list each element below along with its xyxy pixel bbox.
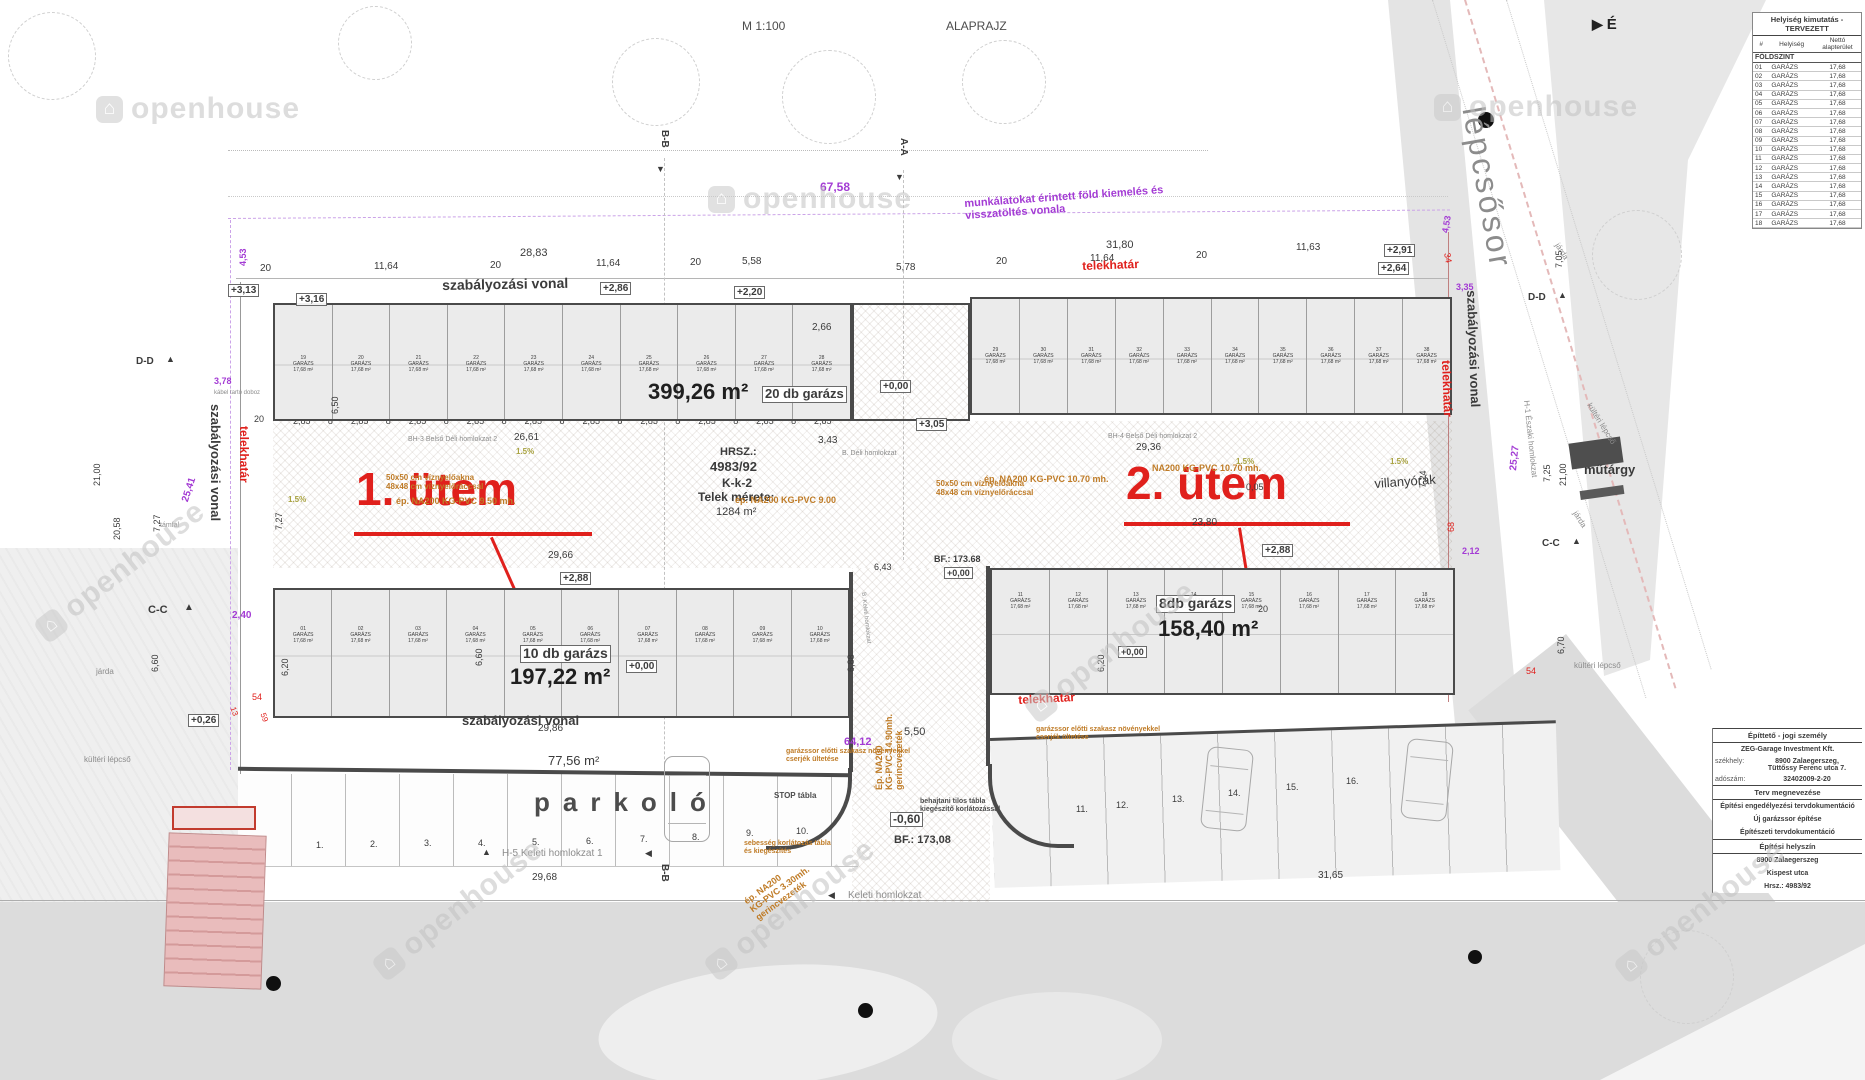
garage-cell-label: 08 GARÁZS 17,68 m²	[677, 626, 733, 644]
dim: 3,78	[214, 376, 232, 386]
section-mark: B-B	[659, 864, 670, 882]
manhole-dot	[266, 976, 281, 991]
dim: 29,68	[532, 872, 557, 883]
schedule-cell-room: GARÁZS	[1769, 200, 1814, 209]
schedule-cell-room: GARÁZS	[1769, 191, 1814, 200]
garage-count-top: 20 db garázs	[762, 386, 847, 403]
garage-row-top-right: 29 GARÁZS 17,68 m²30 GARÁZS 17,68 m²31 G…	[970, 297, 1452, 415]
garage-cell: 07 GARÁZS 17,68 m²	[619, 590, 676, 716]
garage-cell: 37 GARÁZS 17,68 m²	[1355, 299, 1403, 413]
drawing-type-label: ALAPRAJZ	[946, 20, 1007, 33]
garage-cell-label: 09 GARÁZS 17,68 m²	[734, 626, 790, 644]
schedule-cell-area: 17,68	[1814, 81, 1861, 90]
watermark: ⌂openhouse	[96, 92, 300, 126]
garage-count-phase1: 10 db garázs	[520, 645, 611, 663]
level: +0,00	[626, 660, 657, 673]
hq-label: székhely:	[1715, 758, 1751, 772]
schedule-cell-room: GARÁZS	[1769, 182, 1814, 191]
note-cable-box: kábel tartó doboz	[214, 390, 260, 397]
garage-cell: 09 GARÁZS 17,68 m²	[734, 590, 791, 716]
dim: 64,12	[844, 736, 872, 748]
note-sidewalk: járda	[96, 668, 114, 677]
schedule-cell-area: 17,68	[1814, 145, 1861, 154]
watermark-text: openhouse	[131, 92, 300, 126]
manhole-dot	[858, 1003, 873, 1018]
dim: 54	[1526, 666, 1536, 676]
parking-slot-number: 15.	[1286, 782, 1299, 792]
level: +2,86	[600, 282, 631, 295]
dim: 29,36	[1136, 442, 1161, 453]
pipe-label: ép. NA200 KG-PVC 9.00	[735, 495, 836, 505]
schedule-cell-area: 17,68	[1814, 191, 1861, 200]
garage-cell: 31 GARÁZS 17,68 m²	[1068, 299, 1116, 413]
level: +2,88	[560, 572, 591, 585]
garage-cell: 19 GARÁZS 17,68 m²	[275, 305, 333, 419]
plot-number-title: HRSZ.:	[720, 446, 757, 458]
schedule-cell-num: 10	[1753, 145, 1769, 154]
garage-cell-label: 27 GARÁZS 17,68 m²	[736, 355, 793, 373]
section-arrow-icon: ▼	[895, 172, 904, 182]
house-logo-icon: ⌂	[96, 96, 123, 123]
dim: 31,65	[1318, 870, 1343, 881]
schedule-cell-area: 17,68	[1814, 72, 1861, 81]
tax-value: 32402009-2-20	[1754, 776, 1860, 783]
schedule-row: 10GARÁZS17,68	[1753, 145, 1861, 154]
dim: 7,24	[1418, 470, 1428, 488]
level: +3,16	[296, 293, 327, 306]
bottom-road	[0, 902, 1865, 1080]
section-mark: D-D	[136, 356, 154, 367]
slope-label: 1.5%	[288, 496, 306, 505]
schedule-cell-room: GARÁZS	[1769, 173, 1814, 182]
section-mark: D-D	[1528, 292, 1546, 303]
schedule-cell-num: 08	[1753, 127, 1769, 136]
drain-label: 50x50 cm víznyelőakna 48x48 cm víznyelőr…	[936, 480, 1033, 498]
dim: 11,64	[596, 258, 620, 269]
drain-label: 50x50 cm víznyelőakna 48x48 cm víznyelőr…	[386, 474, 483, 492]
schedule-row: 16GARÁZS17,68	[1753, 200, 1861, 209]
schedule-cell-num: 01	[1753, 63, 1769, 72]
dim: 20	[996, 256, 1007, 267]
garage-cell-label: 11 GARÁZS 17,68 m²	[992, 592, 1049, 610]
plot-line-left	[240, 282, 241, 774]
schedule-cell-area: 17,68	[1814, 200, 1861, 209]
garage-cell-label: 25 GARÁZS 17,68 m²	[621, 355, 678, 373]
plot-size: 1284 m²	[716, 506, 756, 518]
garage-cell: 01 GARÁZS 17,68 m²	[275, 590, 332, 716]
car-icon	[1400, 738, 1454, 822]
dim: 20,58	[112, 517, 122, 540]
dim: 29,66	[548, 550, 573, 561]
car-icon	[1200, 746, 1254, 832]
dim: 20	[690, 257, 701, 268]
area-parking: 77,56 m²	[548, 754, 599, 769]
dim: 7,25	[1542, 464, 1552, 482]
dim: 28,83	[520, 247, 548, 259]
garage-cell: 21 GARÁZS 17,68 m²	[390, 305, 448, 419]
schedule-cell-room: GARÁZS	[1769, 108, 1814, 117]
dim: 6,70	[1556, 636, 1566, 654]
north-label: É	[1607, 16, 1617, 33]
level: +3,05	[916, 418, 947, 431]
schedule-cell-num: 18	[1753, 219, 1769, 228]
stop-sign-note: STOP tábla	[774, 792, 816, 801]
schedule-cell-num: 14	[1753, 182, 1769, 191]
dim: 20	[1196, 250, 1207, 261]
titleblock-header-site: Építési helyszín	[1713, 839, 1862, 854]
scale-label: M 1:100	[742, 20, 785, 33]
schedule-row: 18GARÁZS17,68	[1753, 219, 1861, 228]
schedule-col-num: #	[1753, 36, 1769, 53]
schedule-cell-num: 11	[1753, 154, 1769, 163]
dim: 68	[1446, 522, 1456, 532]
parking-slot-number: 14.	[1228, 788, 1241, 798]
section-arrow-icon: ▲	[184, 602, 194, 613]
level: +2,64	[1378, 262, 1409, 275]
schedule-cell-area: 17,68	[1814, 136, 1861, 145]
schedule-row: 08GARÁZS17,68	[1753, 127, 1861, 136]
schedule-cell-area: 17,68	[1814, 127, 1861, 136]
schedule-cell-num: 17	[1753, 210, 1769, 219]
tree-icon	[8, 12, 96, 100]
schedule-cell-area: 17,68	[1814, 164, 1861, 173]
room-schedule-table: Helyiség kimutatás - TERVEZETT # Helyisé…	[1752, 12, 1862, 229]
garage-cell-label: 34 GARÁZS 17,68 m²	[1212, 347, 1259, 365]
garage-cell: 24 GARÁZS 17,68 m²	[563, 305, 621, 419]
garage-cell-label: 33 GARÁZS 17,68 m²	[1164, 347, 1211, 365]
dim: 2,12	[1462, 546, 1480, 556]
zoning-code: K-k-2	[722, 477, 752, 490]
garage-cell: 16 GARÁZS 17,68 m²	[1281, 570, 1339, 693]
area-phase1: 197,22 m²	[510, 665, 610, 690]
schedule-cell-num: 12	[1753, 164, 1769, 173]
garage-cell-label: 02 GARÁZS 17,68 m²	[332, 626, 388, 644]
watermark-text: openhouse	[743, 182, 912, 216]
tree-icon	[1592, 210, 1682, 300]
garage-cell: 23 GARÁZS 17,68 m²	[505, 305, 563, 419]
schedule-row: 15GARÁZS17,68	[1753, 191, 1861, 200]
schedule-row: 17GARÁZS17,68	[1753, 210, 1861, 219]
slope-label: 1.5%	[516, 448, 534, 457]
schedule-cell-room: GARÁZS	[1769, 81, 1814, 90]
schedule-row: 11GARÁZS17,68	[1753, 154, 1861, 163]
parking-slot-number: 16.	[1346, 776, 1359, 786]
manhole-dot	[1468, 950, 1482, 964]
schedule-col-room: Helyiség	[1769, 36, 1814, 53]
parking-slot-number: 3.	[424, 838, 432, 848]
schedule-cell-num: 04	[1753, 90, 1769, 99]
level: BF.: 173.68	[934, 554, 981, 564]
garage-cell: 20 GARÁZS 17,68 m²	[333, 305, 391, 419]
garage-cell: 10 GARÁZS 17,68 m²	[792, 590, 848, 716]
schedule-cell-area: 17,68	[1814, 182, 1861, 191]
schedule-row: 07GARÁZS17,68	[1753, 118, 1861, 127]
schedule-row: 13GARÁZS17,68	[1753, 173, 1861, 182]
level: +2,91	[1384, 244, 1415, 257]
north-arrow: ▶ É	[1592, 16, 1617, 33]
garage-cell: 32 GARÁZS 17,68 m²	[1116, 299, 1164, 413]
section-mark: C-C	[148, 604, 168, 616]
dim: 25,27	[1508, 445, 1522, 471]
regulation-line-label: szabályozási vonal	[207, 404, 222, 521]
earthworks-dash-line	[230, 220, 231, 770]
note-outdoor-stairs: kültéri lépcső	[84, 756, 131, 765]
dim: 5,50	[904, 726, 925, 738]
section-arrow-icon: ▼	[656, 164, 665, 174]
garage-cell-label: 04 GARÁZS 17,68 m²	[447, 626, 503, 644]
pipe-label: ép. NA200 KG-PVC 9.50 mh.	[396, 496, 516, 506]
garage-cell-label: 29 GARÁZS 17,68 m²	[972, 347, 1019, 365]
boundary-dot-line	[228, 150, 1208, 151]
pipe-label: Ép. NA200 KG-PVC 14.90mh. gerincvezeték	[874, 714, 904, 790]
garage-cell: 08 GARÁZS 17,68 m²	[677, 590, 734, 716]
dim: 21,00	[1558, 463, 1568, 486]
level: +0,00	[880, 380, 911, 393]
dim: 5,58	[742, 256, 761, 267]
area-top-row: 399,26 m²	[648, 380, 748, 405]
dim: 21,00	[92, 463, 102, 486]
dim: 20	[1258, 604, 1268, 614]
schedule-cell-room: GARÁZS	[1769, 127, 1814, 136]
parking-slot-number: 8.	[692, 832, 700, 842]
schedule-row: 12GARÁZS17,68	[1753, 164, 1861, 173]
schedule-cell-area: 17,68	[1814, 108, 1861, 117]
schedule-cell-area: 17,68	[1814, 219, 1861, 228]
garage-cell-label: 05 GARÁZS 17,68 m²	[505, 626, 561, 644]
parking-slot-number: 10.	[796, 826, 809, 836]
schedule-cell-room: GARÁZS	[1769, 145, 1814, 154]
dim: 3,43	[818, 435, 837, 446]
planting-note: garázssor előtti szakasz növényekkel cse…	[1036, 726, 1160, 742]
dim: 0,05	[1246, 482, 1264, 492]
garage-row-top-left: 19 GARÁZS 17,68 m²20 GARÁZS 17,68 m²21 G…	[273, 303, 852, 421]
schedule-row: 06GARÁZS17,68	[1753, 108, 1861, 117]
schedule-cell-area: 17,68	[1814, 90, 1861, 99]
regulation-line-label: szabályozási vonal	[1463, 290, 1482, 407]
schedule-cell-area: 17,68	[1814, 173, 1861, 182]
garage-cell-label: 20 GARÁZS 17,68 m²	[333, 355, 390, 373]
garage-cell-label: 35 GARÁZS 17,68 m²	[1259, 347, 1306, 365]
section-arrow-icon: ▲	[1558, 290, 1567, 300]
slope-label: 1.5%	[1390, 458, 1408, 467]
facade-label: B. Déli homlokzat	[842, 450, 896, 458]
schedule-col-area: Nettó alapterület	[1814, 36, 1861, 53]
section-mark: B-B	[659, 130, 670, 148]
garage-cell-label: 23 GARÁZS 17,68 m²	[505, 355, 562, 373]
dim: 2,40	[232, 610, 251, 621]
dim: 11,64	[374, 261, 398, 272]
garage-cell: 36 GARÁZS 17,68 m²	[1307, 299, 1355, 413]
section-arrow-icon: ◀	[645, 848, 652, 858]
parking-slot-number: 11.	[1076, 804, 1088, 814]
schedule-cell-room: GARÁZS	[1769, 63, 1814, 72]
garage-cell-label: 19 GARÁZS 17,68 m²	[275, 355, 332, 373]
garage-cell: 11 GARÁZS 17,68 m²	[992, 570, 1050, 693]
level: BF.: 173,08	[894, 834, 951, 846]
tax-label: adószám:	[1715, 776, 1751, 783]
garage-cell-label: 26 GARÁZS 17,68 m²	[678, 355, 735, 373]
dim: 11,63	[1296, 242, 1320, 253]
schedule-cell-area: 17,68	[1814, 210, 1861, 219]
parking-slot-number: 12.	[1116, 800, 1129, 810]
garage-cell-label: 17 GARÁZS 17,68 m²	[1339, 592, 1396, 610]
level: +0,00	[944, 567, 973, 579]
parking-slot-number: 9.	[746, 828, 754, 838]
dim: 6,20	[280, 658, 290, 676]
parking-slot-number: 2.	[370, 839, 378, 849]
schedule-row: 05GARÁZS17,68	[1753, 99, 1861, 108]
plot-number: 4983/92	[710, 460, 757, 475]
schedule-cell-room: GARÁZS	[1769, 99, 1814, 108]
note-earthworks: munkálatokat érintett föld kiemelés és v…	[964, 184, 1165, 222]
schedule-row: 01GARÁZS17,68	[1753, 63, 1861, 72]
facade-label: BH-3 Belső Déli homlokzat 2	[408, 436, 497, 444]
titleblock-header-plan: Terv megnevezése	[1713, 785, 1862, 800]
parking-label: parkoló	[534, 788, 719, 817]
section-arrow-icon: ▲	[482, 847, 491, 857]
dim: 6,60	[474, 648, 484, 666]
garage-cell: 30 GARÁZS 17,68 m²	[1020, 299, 1068, 413]
schedule-row: 03GARÁZS17,68	[1753, 81, 1861, 90]
garage-cell: 22 GARÁZS 17,68 m²	[448, 305, 506, 419]
regulation-line-label: szabályozási vonal	[442, 276, 568, 294]
schedule-cell-room: GARÁZS	[1769, 136, 1814, 145]
garage-cell-label: 01 GARÁZS 17,68 m²	[275, 626, 331, 644]
garage-cell-label: 10 GARÁZS 17,68 m²	[792, 626, 848, 644]
schedule-cell-room: GARÁZS	[1769, 219, 1814, 228]
garage-cell-label: 18 GARÁZS 17,68 m²	[1396, 592, 1453, 610]
garage-cell-label: 36 GARÁZS 17,68 m²	[1307, 347, 1354, 365]
garage-cell-label: 21 GARÁZS 17,68 m²	[390, 355, 447, 373]
garage-cell-label: 32 GARÁZS 17,68 m²	[1116, 347, 1163, 365]
schedule-cell-room: GARÁZS	[1769, 118, 1814, 127]
dim: 7,27	[274, 512, 284, 530]
plan-name-1: Építési engedélyezési tervdokumentáció	[1713, 800, 1862, 813]
stairs-landing	[172, 806, 256, 830]
passage	[852, 303, 970, 421]
note-sidewalk: járda	[1570, 510, 1587, 530]
dim: 20	[260, 263, 271, 274]
schedule-cell-room: GARÁZS	[1769, 164, 1814, 173]
parking-slot-number: 7.	[640, 834, 648, 844]
plan-name-3: Építészeti tervdokumentáció	[1713, 826, 1862, 839]
structure-label: műtárgy	[1584, 463, 1635, 478]
section-mark: C-C	[1542, 538, 1560, 549]
schedule-title: Helyiség kimutatás - TERVEZETT	[1753, 13, 1861, 36]
watermark-text: openhouse	[1469, 90, 1638, 124]
garage-cell: 29 GARÁZS 17,68 m²	[972, 299, 1020, 413]
facade-label: H-1 Északi homlokzat	[1521, 400, 1538, 478]
dim: 6,50	[330, 396, 340, 414]
dim: 6,60	[150, 654, 160, 672]
note-outdoor-stairs: kültéri lépcső	[1574, 662, 1621, 671]
parking-slot-number: 4.	[478, 838, 486, 848]
garage-cell: 02 GARÁZS 17,68 m²	[332, 590, 389, 716]
garage-cell: 18 GARÁZS 17,68 m²	[1396, 570, 1453, 693]
level: +3,13	[228, 284, 259, 297]
watermark: ⌂openhouse	[708, 182, 912, 216]
schedule-row: 09GARÁZS17,68	[1753, 136, 1861, 145]
schedule-cell-area: 17,68	[1814, 154, 1861, 163]
plot-boundary-label: telekhatár	[1082, 258, 1139, 273]
hq-value: 8900 Zalaegerszeg, Tüttőssy Ferenc utca …	[1754, 758, 1860, 772]
schedule-cell-area: 17,68	[1814, 63, 1861, 72]
schedule-cell-num: 16	[1753, 200, 1769, 209]
schedule-cell-num: 15	[1753, 191, 1769, 200]
schedule-cell-num: 09	[1753, 136, 1769, 145]
owner-company: ZEG-Garage Investment Kft.	[1713, 743, 1862, 756]
parking-slot-number: 13.	[1172, 794, 1185, 804]
dim: 20	[490, 260, 501, 271]
dim: 26,61	[514, 432, 539, 443]
level: +0,26	[188, 714, 219, 727]
schedule-cell-num: 06	[1753, 108, 1769, 117]
garage-cell-label: 30 GARÁZS 17,68 m²	[1020, 347, 1067, 365]
garage-cell-label: 16 GARÁZS 17,68 m²	[1281, 592, 1338, 610]
schedule-row: 04GARÁZS17,68	[1753, 90, 1861, 99]
garage-cell-label: 07 GARÁZS 17,68 m²	[619, 626, 675, 644]
tree-icon	[962, 40, 1046, 124]
plot-boundary-label: telekhatár	[1439, 360, 1454, 417]
house-logo-icon: ⌂	[708, 186, 735, 213]
dim: 2,66	[812, 322, 831, 333]
section-arrow-icon: ▲	[166, 354, 175, 364]
schedule-cell-num: 05	[1753, 99, 1769, 108]
section-mark: A-A	[898, 138, 909, 156]
dim: 59	[258, 712, 269, 723]
tree-icon	[338, 6, 412, 80]
garage-cell-label: 31 GARÁZS 17,68 m²	[1068, 347, 1115, 365]
house-logo-icon: ⌂	[1434, 94, 1461, 121]
dim: 31,80	[1106, 239, 1134, 251]
schedule-cell-num: 07	[1753, 118, 1769, 127]
garage-cell-label: 37 GARÁZS 17,68 m²	[1355, 347, 1402, 365]
phase-2-underline	[1124, 522, 1350, 526]
garage-cell: 33 GARÁZS 17,68 m²	[1164, 299, 1212, 413]
slope-label: 1.5%	[1236, 458, 1254, 467]
dim: 29,86	[538, 723, 563, 734]
watermark: ⌂openhouse	[1434, 90, 1638, 124]
site-plan: ▶ É 2,8582,8582,8582,8582,8582,8582,8582…	[0, 0, 1865, 1080]
garage-cell-label: 28 GARÁZS 17,68 m²	[793, 355, 850, 373]
schedule-cell-area: 17,68	[1814, 118, 1861, 127]
garage-cell-label: 24 GARÁZS 17,68 m²	[563, 355, 620, 373]
dim: 20	[254, 414, 264, 424]
dim: 23,80	[1192, 517, 1217, 528]
tree-icon	[782, 50, 876, 144]
garage-cell: 34 GARÁZS 17,68 m²	[1212, 299, 1260, 413]
schedule-cell-num: 03	[1753, 81, 1769, 90]
garage-cell-label: 03 GARÁZS 17,68 m²	[390, 626, 446, 644]
plot-boundary-label: telekhatár	[237, 426, 250, 483]
parking-slot-number: 6.	[586, 836, 594, 846]
facade-label: BH-4 Belső Déli homlokzat 2	[1108, 433, 1197, 441]
schedule-cell-room: GARÁZS	[1769, 72, 1814, 81]
garage-cell: 17 GARÁZS 17,68 m²	[1339, 570, 1397, 693]
dim: 4,53	[238, 248, 248, 266]
garage-cell: 03 GARÁZS 17,68 m²	[390, 590, 447, 716]
garage-cell-label: 22 GARÁZS 17,68 m²	[448, 355, 505, 373]
road-island	[952, 992, 1162, 1080]
plan-name-2: Új garázssor építése	[1713, 813, 1862, 826]
schedule-section-label: FÖLDSZINT	[1753, 53, 1861, 63]
schedule-cell-num: 02	[1753, 72, 1769, 81]
speed-sign-note: sebesség korlátozás tábla és kiegészítés	[744, 840, 831, 856]
dim-chain-line	[236, 278, 1448, 279]
outdoor-stairs	[163, 832, 266, 989]
dim: 5,78	[896, 262, 915, 273]
schedule-cell-room: GARÁZS	[1769, 154, 1814, 163]
